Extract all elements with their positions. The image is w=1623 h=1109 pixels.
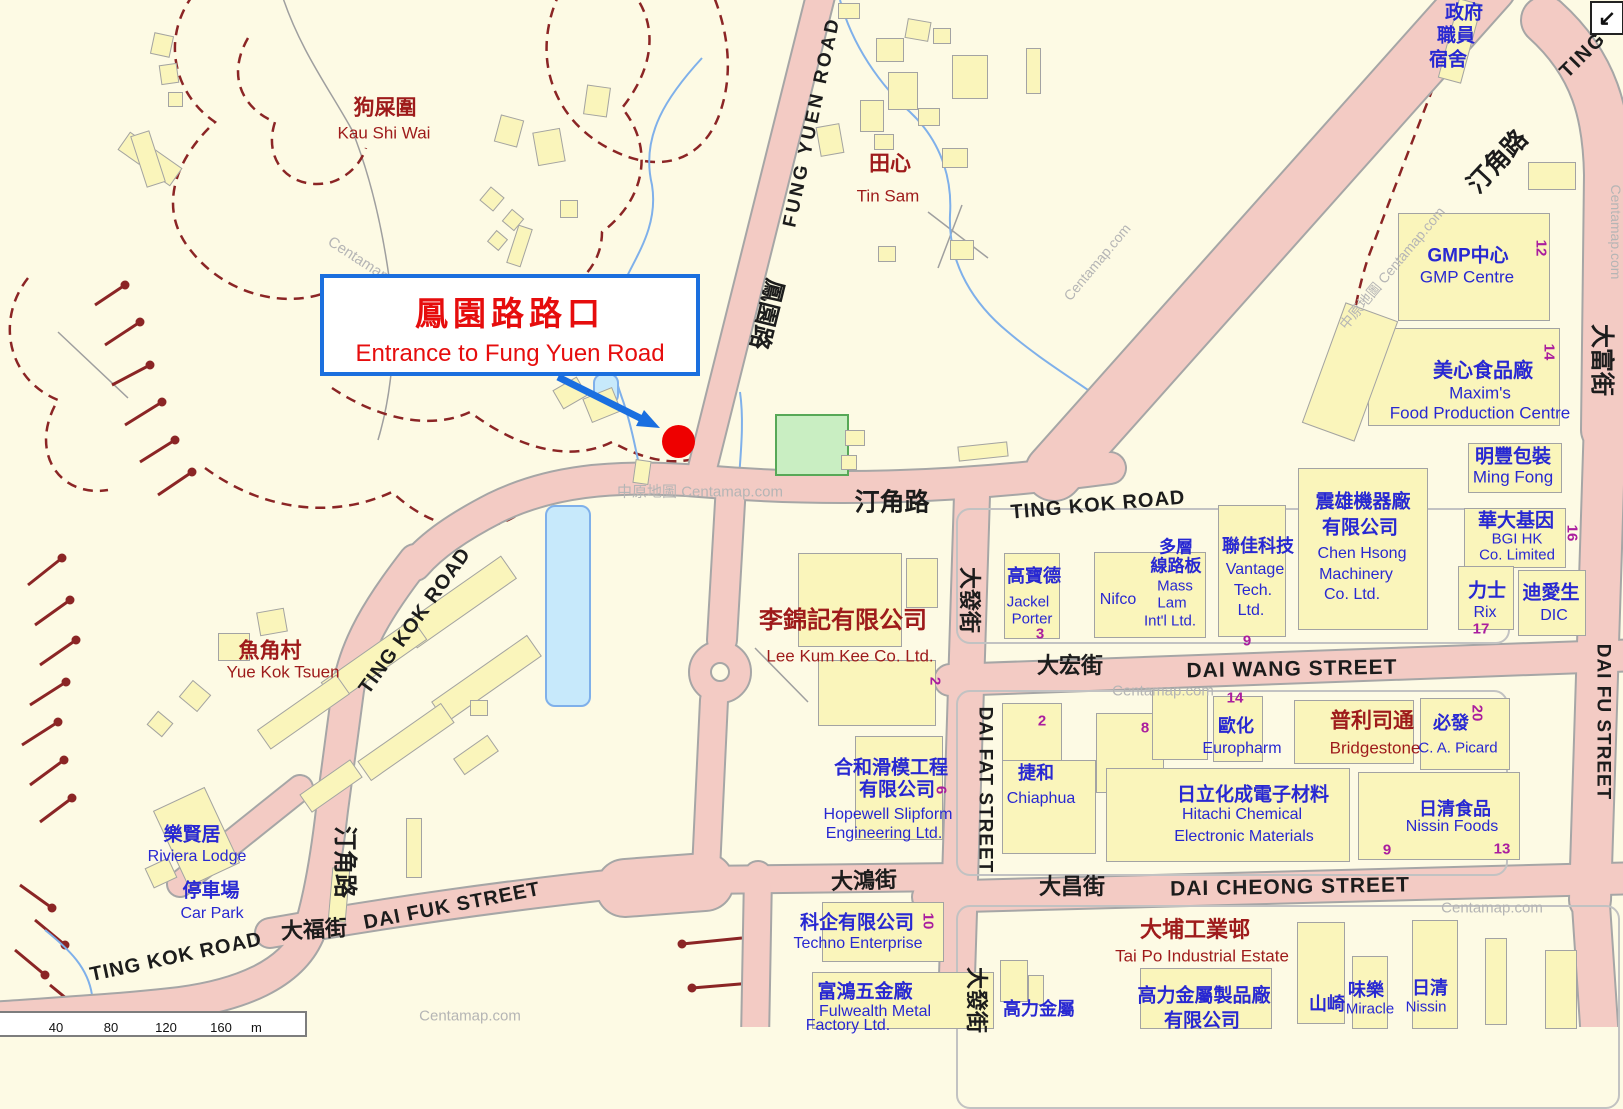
jackel-porter-2-label: Porter	[1012, 612, 1053, 627]
bgi-zh-label: 華大基因	[1478, 512, 1554, 531]
scale-tick-160: 160	[210, 1020, 232, 1035]
building	[552, 376, 587, 409]
chen-hsong-zh-2-label: 有限公司	[1322, 519, 1398, 538]
building	[257, 674, 350, 749]
chen-hsong-zh-1-label: 震雄機器廠	[1315, 493, 1410, 512]
fung-yuen-road-zh-label: 鳳園路	[746, 276, 787, 352]
kau-shi-wai-zh-label: 狗屎圍	[354, 98, 417, 119]
ko-lik-zh-label: 高力金屬	[1003, 1000, 1075, 1018]
miracle-zh-label: 味樂	[1348, 981, 1384, 999]
building	[888, 72, 918, 110]
chen-hsong-2-label: Machinery	[1319, 567, 1393, 583]
ming-fong-label: Ming Fong	[1473, 469, 1553, 486]
watermark-2-label: 中原地圖 Centamap.com	[617, 485, 783, 500]
chiaphua-label: Chiaphua	[1007, 791, 1076, 807]
building	[942, 148, 968, 168]
lot-16-label: 16	[1565, 525, 1580, 542]
lot-20-label: 20	[1470, 705, 1485, 722]
tai-po-industrial-estate-zh-label: 大埔工業邨	[1140, 919, 1250, 941]
rix-zh-label: 力士	[1468, 582, 1506, 601]
building	[906, 558, 938, 608]
hopewell-2-label: Engineering Ltd.	[826, 826, 943, 842]
building	[950, 240, 974, 260]
ca-picard-label: C. A. Picard	[1418, 741, 1497, 756]
yamazaki-zh-label: 山崎	[1309, 995, 1345, 1013]
building	[845, 430, 865, 446]
car-park-label: Car Park	[180, 906, 243, 922]
dai-fuk-street-label: DAI FUK STREET	[362, 879, 542, 933]
building	[583, 84, 611, 117]
nissin-label: Nissin	[1406, 1000, 1447, 1015]
techno-label: Techno Enterprise	[794, 936, 923, 952]
ting-kok-road-sw-label: TING KOK ROAD	[88, 929, 264, 985]
bgi-1-label: BGI HK	[1492, 532, 1543, 547]
watermark-5-label: Centamap.com	[1061, 221, 1133, 303]
building	[818, 660, 936, 726]
mass-lam-1-label: Mass	[1157, 579, 1193, 594]
gmp-centre-zh-label: GMP中心	[1427, 247, 1508, 266]
building	[487, 230, 508, 251]
water-channel	[545, 505, 591, 707]
yue-kok-tsuen-label: Yue Kok Tsuen	[226, 664, 339, 681]
rix-label: Rix	[1473, 605, 1496, 621]
park-area	[775, 414, 849, 476]
dai-fat-street-zh-label: 大發街	[958, 567, 980, 633]
ting-kok-road-ne-zh-label: 汀角路	[1463, 126, 1532, 198]
scale-bar: 1601208040 m	[0, 1011, 307, 1037]
techno-zh-label: 科企有限公司	[800, 914, 914, 933]
callout-box: 鳳園路路口 Entrance to Fung Yuen Road	[320, 274, 700, 376]
bridgestone-label: Bridgestone	[1330, 740, 1421, 757]
dai-wang-street-label: DAI WANG STREET	[1186, 657, 1397, 682]
dai-fuk-street-zh-label: 大福街	[280, 917, 347, 942]
tin-sam-label: Tin Sam	[857, 188, 920, 205]
building	[179, 680, 212, 712]
building	[479, 186, 504, 211]
building	[1545, 950, 1577, 1029]
building	[1528, 162, 1576, 190]
car-park-zh-label: 停車場	[182, 882, 239, 901]
lot-14b-label: 14	[1227, 691, 1244, 706]
building	[1420, 698, 1510, 770]
ting-kok-road-c-zh-label: 汀角路	[854, 491, 929, 516]
mass-lam-zh-2-label: 線路板	[1151, 558, 1202, 575]
chen-hsong-1-label: Chen Hsong	[1318, 546, 1407, 562]
fung-yuen-road-label: FUNG YUEN ROAD	[780, 15, 843, 229]
building	[1000, 960, 1028, 1002]
dai-hung-street-zh-label: 大鴻街	[831, 869, 898, 893]
govt-quarters-zh-1-label: 政府	[1445, 4, 1483, 23]
scale-unit: m	[251, 1020, 262, 1035]
tai-po-industrial-estate-label: Tai Po Industrial Estate	[1115, 948, 1289, 965]
building	[957, 441, 1008, 461]
yue-kok-tsuen-zh-label: 魚角村	[239, 641, 302, 662]
building	[357, 703, 454, 781]
maxims-2-label: Food Production Centre	[1390, 405, 1571, 422]
vantage-2-label: Tech.	[1234, 583, 1272, 599]
dic-zh-label: 迪愛生	[1522, 584, 1579, 603]
watermark-8-label: Centamap.com	[1441, 901, 1543, 916]
nifco-label: Nifco	[1100, 592, 1136, 608]
mass-lam-2-label: Lam	[1157, 596, 1186, 611]
europharm-label: Europharm	[1202, 741, 1281, 757]
lot-8-label: 8	[1141, 721, 1149, 736]
lee-kum-kee-zh-label: 李錦記有限公司	[759, 609, 927, 633]
building	[838, 3, 860, 19]
fulwealth-2-label: Factory Ltd.	[806, 1018, 890, 1034]
ko-lik-factory-zh-2-label: 有限公司	[1164, 1012, 1240, 1031]
lot-10-label: 10	[921, 913, 936, 930]
nissin-foods-label: Nissin Foods	[1406, 819, 1498, 835]
hopewell-1-label: Hopewell Slipform	[824, 807, 953, 823]
ting-kok-road-ne-label: TING	[1556, 28, 1610, 82]
watermark-4-label: Centamap.com	[1609, 185, 1623, 280]
scale-tick-120: 120	[155, 1020, 177, 1035]
lot-14a-label: 14	[1542, 344, 1557, 361]
chiaphua-zh-label: 捷和	[1018, 764, 1054, 782]
scale-tick-40: 40	[49, 1020, 63, 1035]
dai-cheong-street-zh-label: 大昌街	[1039, 876, 1105, 898]
watermark-3-label: Centamap.com	[1112, 684, 1214, 699]
nissin-zh-label: 日清	[1412, 979, 1448, 997]
map-canvas: FUNG YUEN ROAD鳳園路TING汀角路TING KOK ROAD汀角路…	[0, 0, 1623, 1027]
callout-title-zh: 鳳園路路口	[324, 287, 696, 335]
dai-fat-street-label: DAI FAT STREET	[976, 707, 995, 874]
callout-title-en: Entrance to Fung Yuen Road	[324, 340, 696, 368]
hitachi-2-label: Electronic Materials	[1174, 829, 1314, 845]
miracle-label: Miracle	[1346, 1002, 1394, 1017]
lot-12-label: 12	[1534, 240, 1549, 257]
jackel-porter-1-label: Jackel	[1007, 595, 1050, 610]
building	[878, 246, 896, 262]
kau-shi-wai-label: Kau Shi Wai	[338, 125, 431, 142]
lot-17-label: 17	[1473, 622, 1490, 637]
building	[494, 114, 524, 147]
dic-label: DIC	[1540, 608, 1568, 624]
building	[299, 759, 362, 813]
jackel-porter-zh-label: 高寶德	[1007, 567, 1061, 585]
dai-fu-street-label: DAI FU STREET	[1594, 644, 1613, 801]
govt-quarters-zh-2-label: 職員	[1437, 27, 1475, 46]
ko-lik-factory-zh-1-label: 高力金屬製品廠	[1137, 987, 1270, 1006]
building	[1152, 690, 1208, 760]
hopewell-zh-1-label: 合和滑模工程	[834, 759, 948, 778]
building	[159, 63, 180, 85]
bridgestone-zh-label: 普利司通	[1330, 711, 1414, 732]
lot-3-label: 3	[1036, 627, 1044, 642]
vantage-3-label: Ltd.	[1238, 603, 1265, 619]
building	[952, 55, 988, 99]
building	[918, 108, 940, 126]
building	[150, 32, 174, 58]
dai-fat-street-zh-s-label: 大發街	[965, 967, 987, 1033]
building	[453, 735, 499, 775]
ming-fong-zh-label: 明豐包裝	[1475, 448, 1551, 467]
lot-9b-label: 9	[1383, 843, 1391, 858]
contour-lines	[10, 0, 1452, 528]
building	[560, 200, 578, 218]
building	[876, 38, 904, 62]
maxims-label: Maxim's	[1449, 385, 1511, 402]
ca-picard-zh-label: 必發	[1433, 714, 1469, 732]
building	[506, 225, 533, 268]
hitachi-1-label: Hitachi Chemical	[1182, 807, 1302, 823]
fulwealth-zh-label: 富鴻五金廠	[817, 983, 912, 1002]
nissin-foods-zh-label: 日清食品	[1419, 800, 1491, 818]
maxims-zh-label: 美心食品廠	[1433, 361, 1533, 381]
building	[632, 459, 651, 485]
govt-quarters-zh-3-label: 宿舍	[1429, 51, 1467, 70]
building	[904, 18, 931, 42]
building	[874, 134, 894, 150]
bgi-2-label: Co. Limited	[1479, 548, 1555, 563]
lot-2a-label: 2	[1038, 714, 1046, 729]
dai-cheong-street-label: DAI CHEONG STREET	[1170, 874, 1410, 899]
ting-kok-road-w-label: TING KOK ROAD	[355, 544, 474, 698]
building	[147, 711, 174, 738]
europharm-zh-label: 歐化	[1218, 717, 1254, 735]
scale-tick-80: 80	[104, 1020, 118, 1035]
lot-13-label: 13	[1494, 842, 1511, 857]
building	[470, 700, 488, 716]
lee-kum-kee-label: Lee Kum Kee Co. Ltd.	[766, 648, 933, 665]
lot-6-label: 6	[934, 786, 949, 794]
building	[933, 28, 951, 44]
hitachi-zh-label: 日立化成電子材料	[1177, 786, 1329, 805]
watermark-7-label: Centamap.com	[419, 1009, 521, 1024]
riviera-lodge-zh-label: 樂賢居	[163, 826, 220, 845]
building	[256, 608, 288, 636]
ting-kok-road-w-zh-label: 汀角路	[332, 826, 356, 898]
building	[841, 455, 857, 470]
lot-2b-label: 2	[928, 677, 943, 685]
building	[1485, 938, 1507, 1025]
dai-fu-street-zh-label: 大富街	[1589, 324, 1613, 396]
dai-wang-street-zh-label: 大宏街	[1037, 655, 1103, 677]
building	[406, 818, 422, 878]
mass-lam-zh-1-label: 多層	[1159, 539, 1193, 556]
building	[1026, 48, 1041, 94]
riviera-lodge-label: Riviera Lodge	[148, 849, 247, 865]
chen-hsong-3-label: Co. Ltd.	[1324, 587, 1380, 603]
pan-southwest-glyph: ↙	[1598, 6, 1616, 31]
hopewell-zh-2-label: 有限公司	[859, 781, 935, 800]
building	[168, 92, 183, 107]
lot-9a-label: 9	[1243, 634, 1251, 649]
building	[532, 128, 565, 166]
mass-lam-3-label: Int'l Ltd.	[1144, 614, 1196, 629]
vantage-1-label: Vantage	[1226, 562, 1284, 578]
gmp-centre-label: GMP Centre	[1420, 269, 1514, 286]
location-marker	[662, 425, 695, 458]
vantage-zh-label: 聯佳科技	[1222, 537, 1294, 555]
building	[860, 100, 884, 132]
tin-sam-zh-label: 田心	[869, 154, 911, 175]
pan-southwest-icon[interactable]: ↙	[1590, 1, 1623, 35]
